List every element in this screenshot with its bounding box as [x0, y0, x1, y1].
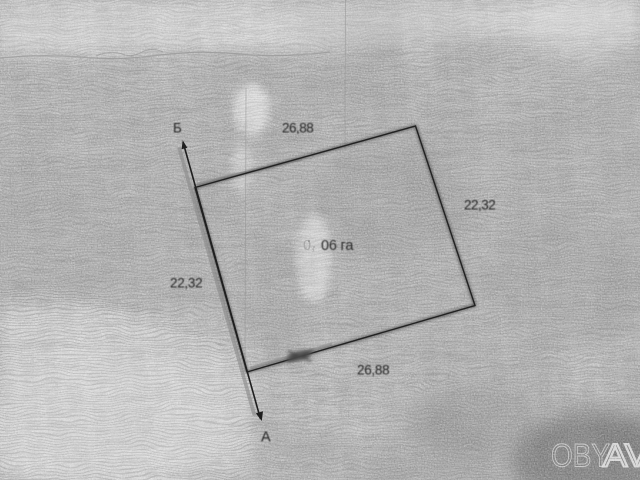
svg-text:06 га: 06 га — [321, 238, 354, 254]
svg-text:22,32: 22,32 — [464, 198, 495, 213]
svg-text:AV: AV — [603, 438, 640, 474]
svg-text:26,88: 26,88 — [357, 363, 389, 378]
svg-text:Б: Б — [173, 121, 182, 136]
svg-text:А: А — [261, 430, 271, 446]
svg-text:26,88: 26,88 — [282, 121, 313, 136]
svg-text:OBY: OBY — [551, 438, 610, 474]
svg-text:22,32: 22,32 — [170, 276, 202, 291]
